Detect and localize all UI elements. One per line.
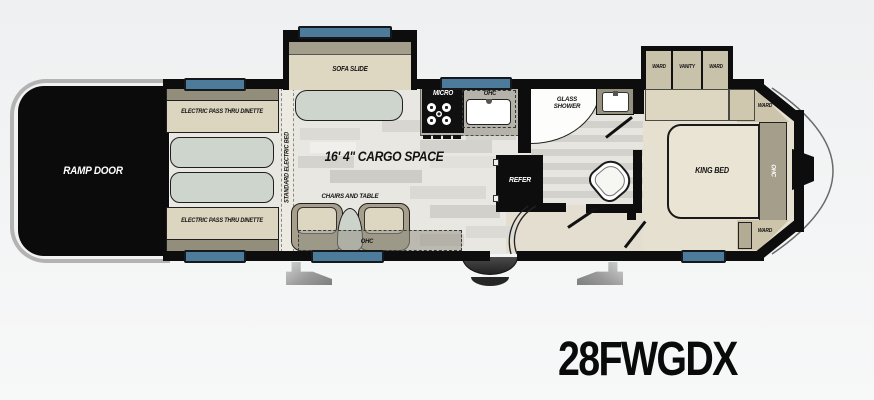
bath-sink-cabinet: [596, 88, 634, 115]
window-bedroom-bottom: [681, 250, 726, 263]
ward-front-bottom-label: WARD: [746, 228, 784, 234]
dinette-bottom-label: ELECTRIC PASS THRU DINETTE: [170, 218, 274, 225]
window-kitchen-top: [440, 77, 512, 90]
bedroom-underslide-band: [645, 89, 729, 121]
nightstand: [738, 222, 752, 249]
ohc-kitchen-label: OHC: [470, 90, 510, 97]
dinette-top-label: ELECTRIC PASS THRU DINETTE: [170, 109, 274, 116]
ward-slide-left-label: WARD: [646, 65, 673, 71]
refer-hinge-bottom: [493, 195, 499, 202]
window-garage-top: [184, 78, 246, 91]
entry-step-lower: [471, 277, 509, 286]
kitchen-sink: [466, 99, 511, 125]
ward-front-top-label: WARD: [746, 103, 784, 109]
dinette-bench-bottom: [166, 207, 279, 252]
bath-sink: [602, 92, 629, 112]
wall-stub-hall: [627, 211, 636, 220]
window-living-bottom: [311, 250, 384, 263]
micro-label: MICRO: [416, 90, 470, 98]
wall-front-right: [794, 110, 804, 232]
glass-shower-line1: GLASS: [557, 96, 577, 103]
glass-shower-line2: SHOWER: [554, 103, 580, 110]
window-garage-bottom: [184, 250, 246, 263]
floorplan-canvas: RAMP DOOR ELECTRIC PASS THRU DINETTE ELE…: [0, 0, 874, 400]
refer-label: REFER: [499, 176, 540, 184]
sofa-slide-label: SOFA SLIDE: [296, 66, 404, 74]
sofa-cushion: [295, 90, 403, 121]
vanity-label: VANITY: [674, 65, 701, 71]
entry-door-arcs: [500, 204, 544, 256]
ohc-living-label: OHC: [347, 238, 387, 245]
grab-handle-left: [286, 262, 332, 285]
wall-bath-right: [633, 150, 642, 212]
model-number: 28FWGDX: [558, 332, 737, 387]
garage-cushion-1: [170, 137, 274, 168]
garage-cushion-2: [170, 172, 274, 203]
wall-bath-top-right: [634, 86, 644, 114]
king-bed-label: KING BED: [667, 167, 757, 176]
wall-kitchen-bath: [518, 85, 531, 153]
grab-handle-right: [577, 262, 623, 285]
window-sofa-slide: [298, 26, 392, 39]
ramp-door-label: RAMP DOOR: [30, 165, 156, 177]
chairs-table-label: CHAIRS AND TABLE: [301, 193, 400, 200]
kitchen-faucet: [486, 99, 492, 104]
standard-electric-bed-label: STANDARD ELECTRIC BED: [285, 95, 292, 239]
glass-shower-label: GLASS SHOWER: [539, 96, 595, 111]
sofa-slide-backrest: [289, 42, 411, 55]
wall-bottom-right: [517, 251, 764, 261]
cargo-space-label: 16' 4" CARGO SPACE: [316, 150, 453, 165]
refer-hinge-top: [493, 159, 499, 166]
bath-faucet: [613, 91, 618, 96]
ohc-bedroom-label: OHC: [769, 126, 776, 216]
ward-slide-right-label: WARD: [703, 65, 730, 71]
